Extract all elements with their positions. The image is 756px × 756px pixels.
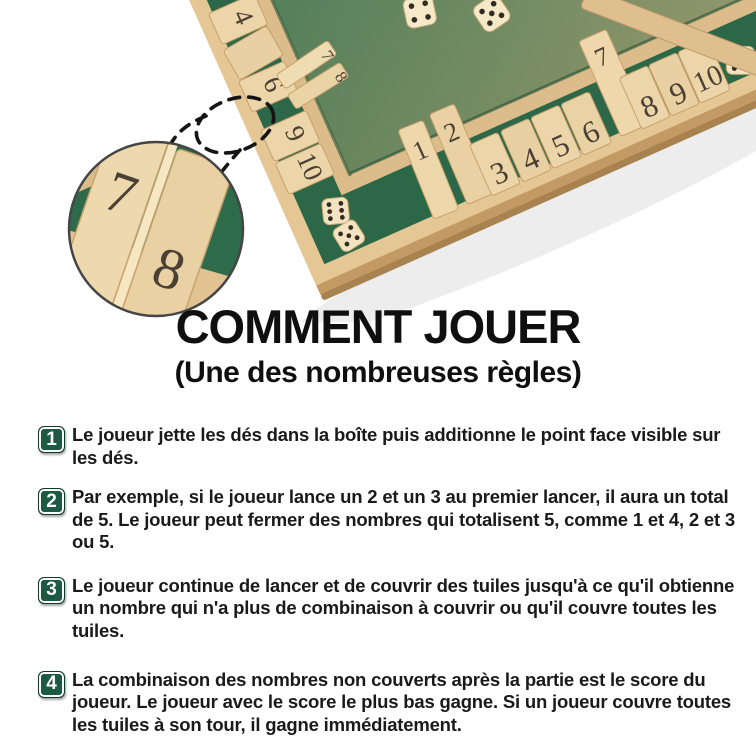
rules-list: 1 Le joueur jette les dés dans la boîte … [38, 424, 738, 736]
step-text: Par exemple, si le joueur lance un 2 et … [72, 486, 738, 554]
step-number-badge: 4 [38, 671, 65, 698]
step-number-badge: 3 [38, 577, 65, 604]
rule-step: 2 Par exemple, si le joueur lance un 2 e… [38, 486, 738, 554]
step-text: Le joueur continue de lancer et de couvr… [72, 575, 738, 643]
page-subtitle: (Une des nombreuses règles) [0, 354, 756, 392]
rule-step: 1 Le joueur jette les dés dans la boîte … [38, 424, 738, 469]
rule-step: 4 La combinaison des nombres non couvert… [38, 669, 738, 737]
step-text: Le joueur jette les dés dans la boîte pu… [72, 424, 738, 469]
step-number-badge: 1 [38, 426, 65, 453]
shut-the-box-board-photo: 4 6 9 10 7 8 1 2 [0, 0, 756, 322]
product-photo: 4 6 9 10 7 8 1 2 [0, 0, 756, 322]
step-text: La combinaison des nombres non couverts … [72, 669, 738, 737]
page-title: COMMENT JOUER [0, 298, 756, 356]
step-number-badge: 2 [38, 488, 65, 515]
dice-icon [321, 197, 350, 226]
rule-step: 3 Le joueur continue de lancer et de cou… [38, 575, 738, 643]
magnifier-inset: 7 8 [29, 111, 275, 322]
